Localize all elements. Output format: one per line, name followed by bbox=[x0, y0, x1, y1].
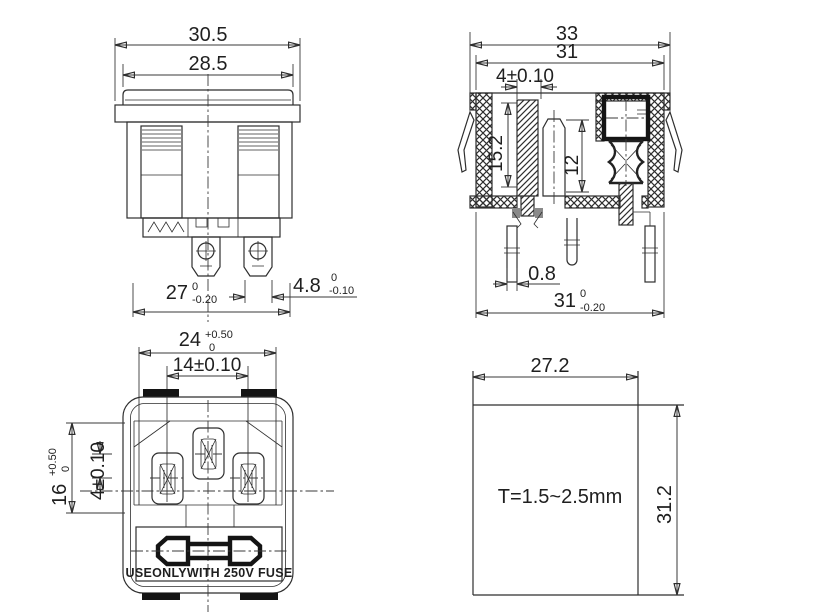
pin-live bbox=[152, 453, 183, 504]
pin-section-left bbox=[517, 100, 538, 196]
recess-chamfer-right bbox=[246, 421, 282, 447]
dim-front-tab-tol-lower: -0.10 bbox=[329, 285, 354, 297]
dim-front-tab-tol-upper: 0 bbox=[331, 272, 337, 284]
dim-panel-pin-pitch: 14±0.10 bbox=[173, 355, 242, 376]
dim-front-width-outer: 30.5 bbox=[189, 24, 228, 46]
dim-panel-opening-width-tol-lower: 0 bbox=[209, 342, 215, 354]
snap-wing-right bbox=[666, 112, 682, 172]
dim-side-cavity-depth: 15.2 bbox=[486, 135, 507, 172]
socket-body bbox=[127, 122, 292, 218]
solder-pin-right bbox=[645, 226, 655, 282]
dim-cutout-width: 27.2 bbox=[531, 355, 570, 377]
dim-front-body-width: 27 bbox=[166, 282, 188, 304]
spring-contact bbox=[609, 141, 615, 183]
dim-side-bottom-width: 31 bbox=[554, 290, 576, 312]
latch-ribs-right bbox=[239, 130, 278, 150]
fuse-warning-label: USEONLYWITH 250V FUSE bbox=[126, 566, 293, 580]
mounting-tab-bottom-right bbox=[240, 593, 278, 600]
spring-contact bbox=[637, 141, 643, 183]
base-plate bbox=[143, 218, 280, 237]
dim-front-width-cap: 28.5 bbox=[189, 53, 228, 75]
mounting-tab-top-left bbox=[143, 389, 179, 397]
mounting-flange bbox=[115, 105, 300, 122]
snap-wing-left bbox=[458, 112, 474, 172]
pin-bracket bbox=[633, 212, 650, 226]
base-notch bbox=[218, 218, 229, 227]
dim-side-pin-width: 4±0.10 bbox=[496, 66, 554, 87]
solder-pin-left bbox=[507, 226, 517, 282]
dim-panel-opening-height-tol-lower: 0 bbox=[60, 466, 72, 472]
dim-side-bottom-tol-upper: 0 bbox=[580, 288, 586, 300]
panel-front-view: 24 +0.50 0 14±0.10 bbox=[47, 329, 334, 612]
latch-ribs-left bbox=[142, 130, 181, 150]
drawing-canvas: 30.5 28.5 bbox=[0, 0, 813, 615]
dim-cutout-height: 31.2 bbox=[654, 485, 676, 524]
fuse-notch bbox=[637, 110, 646, 114]
front-view: 30.5 28.5 bbox=[115, 24, 357, 322]
pin-neutral bbox=[233, 453, 264, 504]
dim-panel-opening-width: 24 bbox=[179, 329, 201, 351]
panel-thickness-note: T=1.5~2.5mm bbox=[498, 486, 623, 508]
dim-side-width-flange: 31 bbox=[556, 41, 578, 63]
mounting-tab-bottom-left bbox=[142, 593, 180, 600]
mounting-tab-top-right bbox=[241, 389, 277, 397]
solder-pin-middle bbox=[567, 218, 577, 265]
dim-panel-pin-offset: 4±0.10 bbox=[88, 442, 109, 500]
pin-detail bbox=[160, 464, 175, 494]
dim-panel-opening-width-tol-upper: +0.50 bbox=[205, 329, 233, 341]
pin-section-right bbox=[619, 183, 633, 225]
engineering-drawing-page: 30.5 28.5 bbox=[0, 0, 813, 615]
flange-lip-left bbox=[470, 93, 476, 110]
dim-panel-opening-height: 16 bbox=[49, 484, 71, 506]
dim-panel-opening-height-tol-upper: +0.50 bbox=[47, 448, 59, 476]
dim-front-body-tol-upper: 0 bbox=[192, 281, 198, 293]
dim-side-bottom-tol-lower: -0.20 bbox=[580, 302, 605, 314]
side-view: 33 31 4±0.10 15.2 bbox=[458, 23, 682, 318]
housing-wall-right bbox=[648, 93, 664, 207]
dim-front-tab-width: 4.8 bbox=[293, 275, 321, 297]
panel-cutout-view: 27.2 31.2 T=1.5~2.5mm bbox=[473, 355, 684, 595]
pin-detail bbox=[241, 464, 256, 494]
latch-panel-left bbox=[141, 126, 182, 218]
base-notch bbox=[196, 218, 207, 227]
dim-side-pin-thickness: 0.8 bbox=[528, 263, 556, 285]
flange-lip-right bbox=[664, 93, 670, 110]
housing-bottom-plate bbox=[565, 196, 620, 208]
fuse-drawer-tab bbox=[186, 505, 234, 527]
spring-zigzag bbox=[148, 222, 184, 232]
dim-front-body-tol-lower: -0.20 bbox=[192, 294, 217, 306]
pin-earth bbox=[193, 428, 224, 479]
housing-bottom-plate bbox=[642, 196, 648, 208]
pin-section-left-lower bbox=[521, 196, 534, 216]
latch-panel-right bbox=[238, 126, 279, 218]
dim-side-pin-length: 12 bbox=[562, 155, 583, 176]
housing-bottom-plate bbox=[470, 196, 517, 208]
